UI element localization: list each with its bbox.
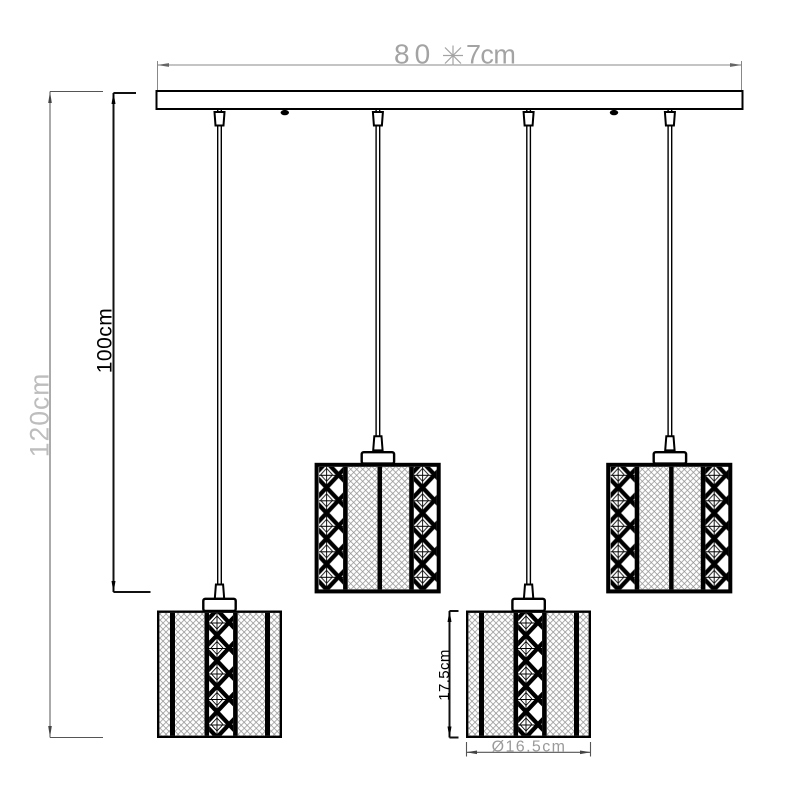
svg-text:100cm: 100cm [94,308,117,374]
svg-text:80: 80 [394,39,435,70]
svg-text:120cm: 120cm [25,373,55,458]
svg-text:Ø16.5cm: Ø16.5cm [492,739,567,756]
svg-text:7cm: 7cm [466,40,515,70]
svg-text:17.5cm: 17.5cm [436,649,453,701]
